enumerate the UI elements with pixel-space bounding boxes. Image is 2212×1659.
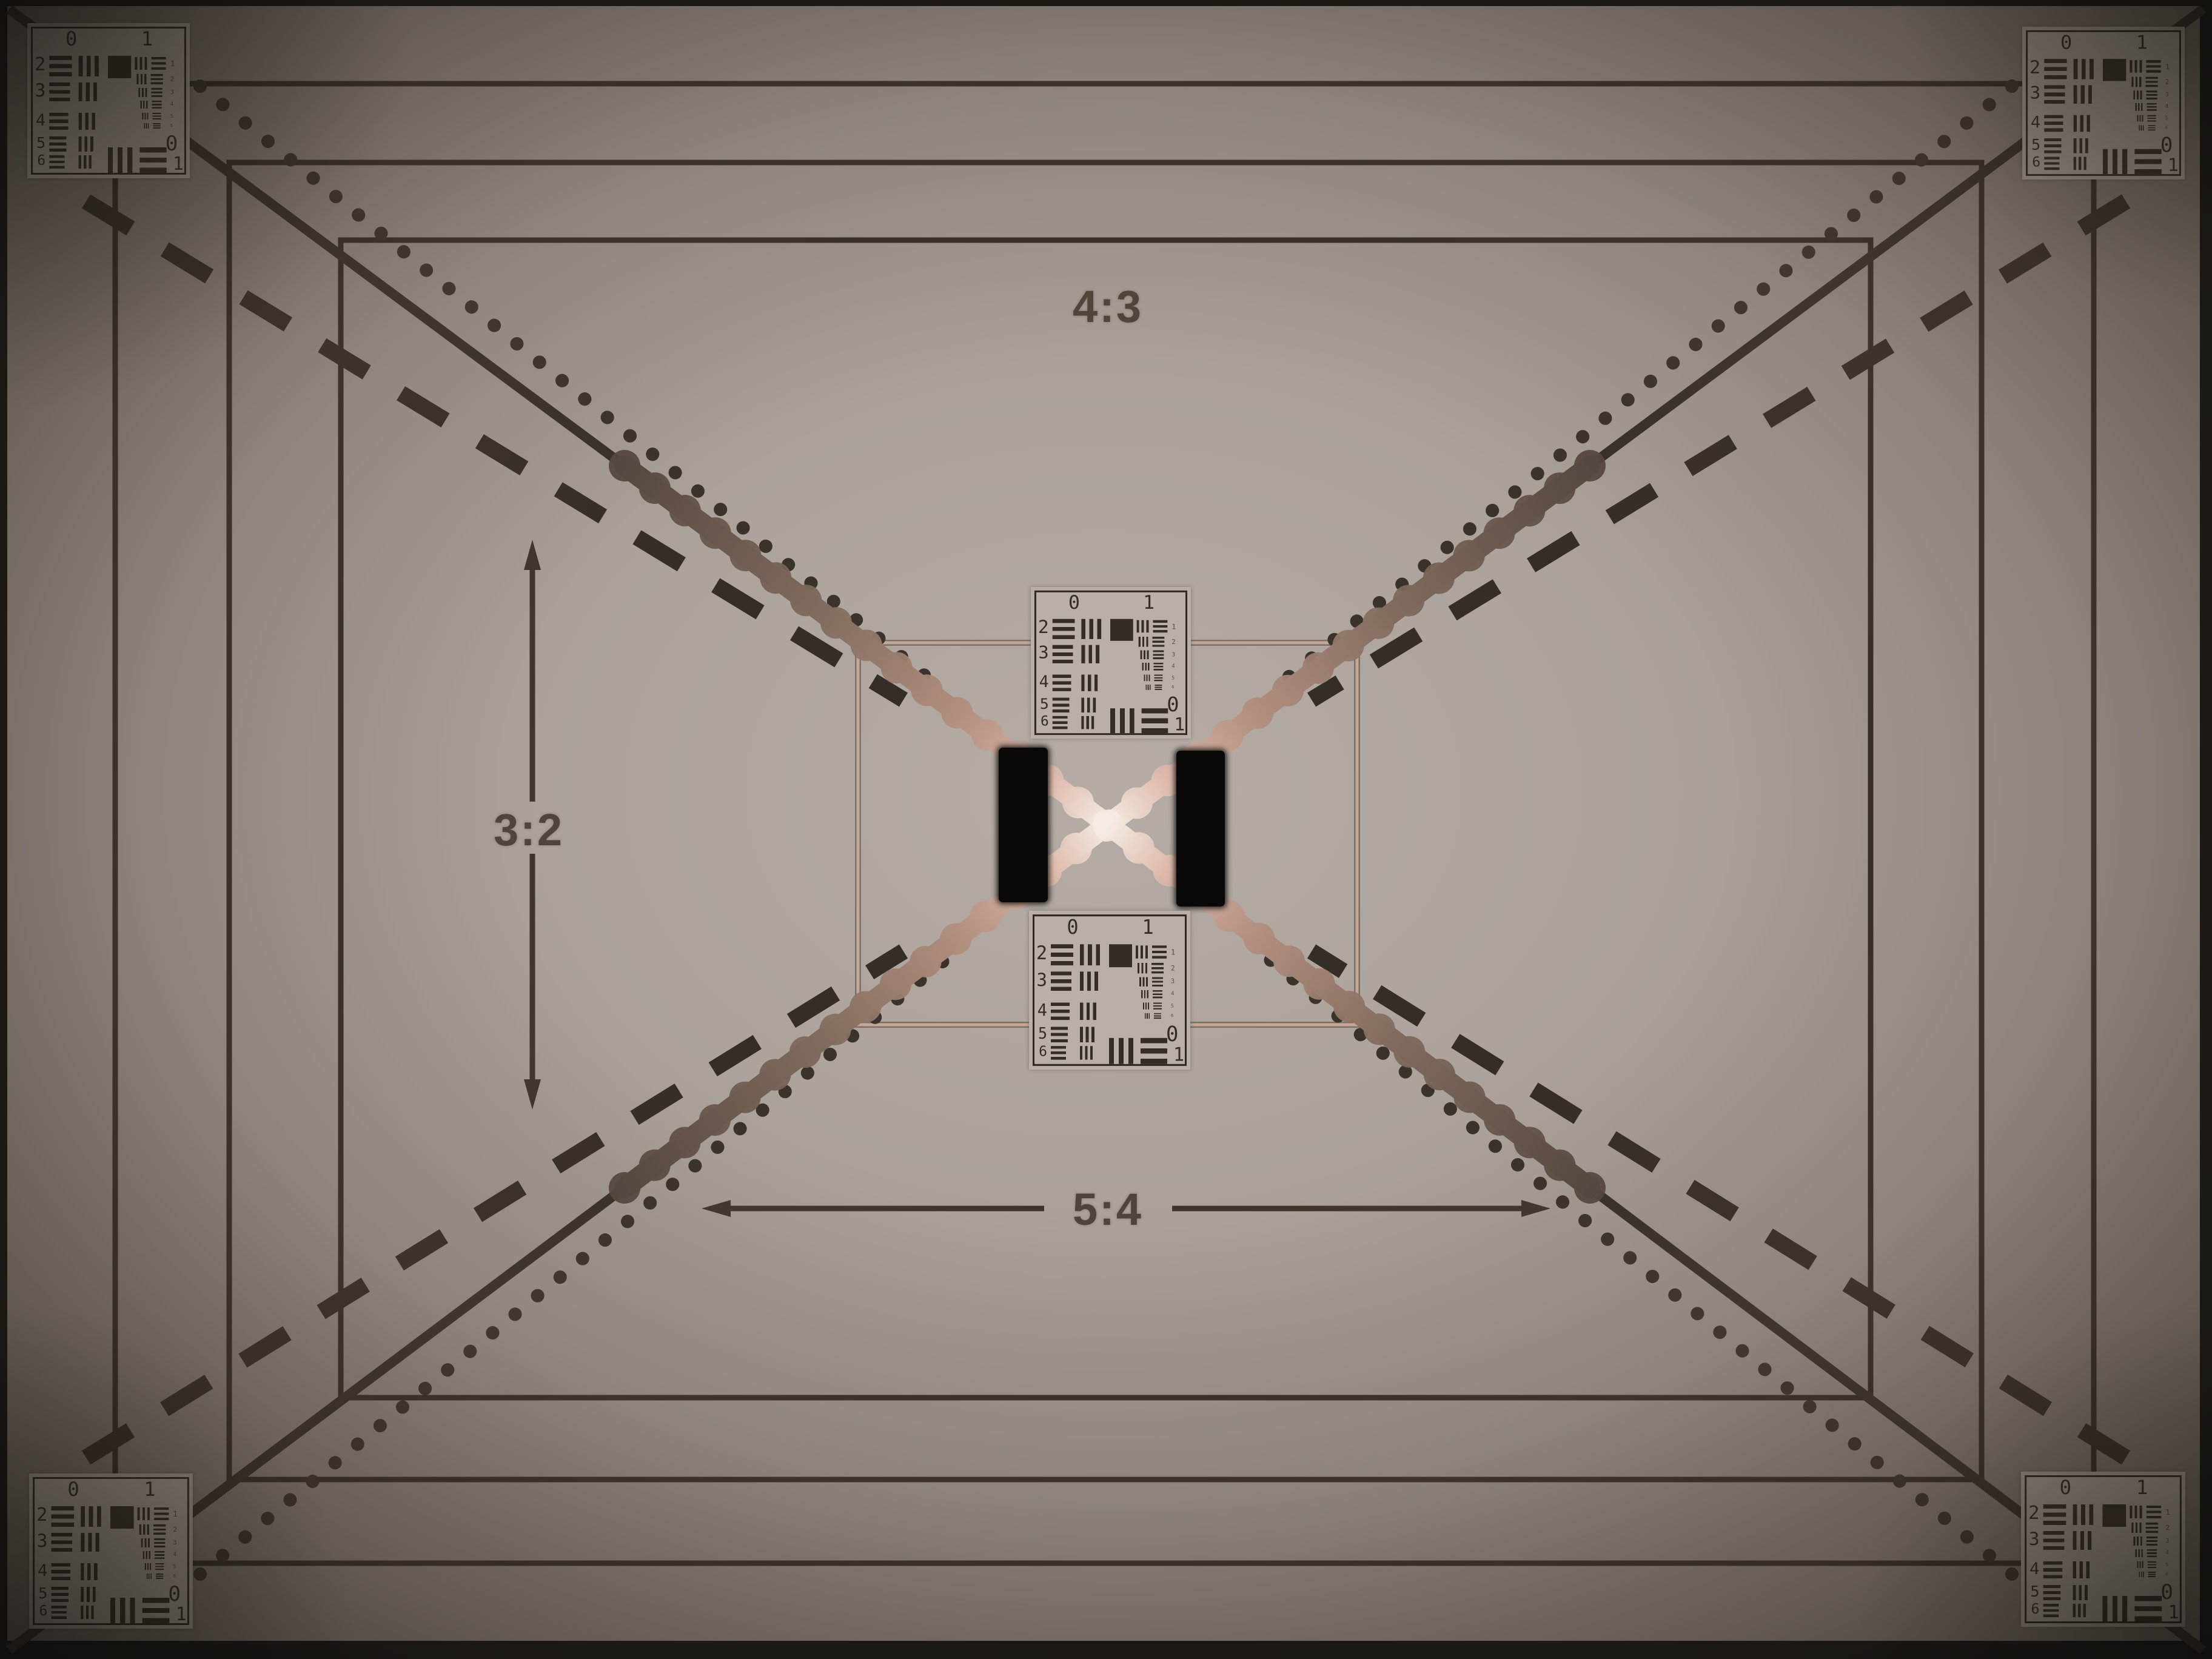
- right-horizontal-bars: [151, 74, 163, 84]
- card-black-square: [2103, 59, 2126, 81]
- left-horizontal-bars: [49, 155, 64, 169]
- right-horizontal-bars: [152, 101, 162, 109]
- bottom-vertical-bars: [1109, 1038, 1133, 1064]
- left-horizontal-bars: [1051, 971, 1071, 991]
- card-bottom-0-label: 0: [168, 1584, 181, 1604]
- right-horizontal-bars: [155, 1563, 164, 1570]
- left-row-number: 2: [2025, 59, 2040, 77]
- right-row-number: 4: [1171, 664, 1175, 669]
- left-horizontal-bars: [2044, 157, 2059, 170]
- left-horizontal-bars: [52, 1587, 69, 1602]
- left-row-number: 4: [2023, 1561, 2039, 1577]
- right-horizontal-bars: [2147, 103, 2157, 111]
- card-black-square: [110, 1506, 134, 1529]
- left-horizontal-bars: [2043, 1585, 2061, 1600]
- right-vertical-bars: [2139, 125, 2143, 130]
- card-bottom-1-label: 1: [2168, 157, 2179, 175]
- right-vertical-bars: [2137, 115, 2143, 122]
- card-group-1-label: 1: [1137, 593, 1161, 612]
- tape-beads: [625, 466, 1590, 1188]
- right-horizontal-bars: [155, 1551, 164, 1559]
- right-horizontal-bars: [152, 57, 166, 70]
- card-bottom-1-label: 1: [176, 1606, 187, 1624]
- right-horizontal-bars: [1153, 620, 1167, 633]
- card-bottom-1-label: 1: [173, 155, 184, 173]
- chart-graphics: [0, 0, 2212, 1659]
- velcro-right: [1176, 751, 1225, 907]
- left-vertical-bars: [2074, 59, 2094, 79]
- left-vertical-bars: [2073, 1585, 2088, 1600]
- card-black-square: [2102, 1504, 2126, 1527]
- aspect-label-4-3: 4:3: [1041, 281, 1175, 332]
- right-horizontal-bars: [2146, 1523, 2158, 1533]
- left-vertical-bars: [2074, 138, 2088, 153]
- left-horizontal-bars: [2044, 138, 2061, 153]
- target-bottom-right: 0 1 23456 123456 0 1: [2021, 1472, 2185, 1627]
- left-vertical-bars: [1080, 944, 1100, 965]
- left-horizontal-bars: [52, 1563, 70, 1580]
- right-row-number: 5: [170, 114, 173, 119]
- left-horizontal-bars: [49, 82, 70, 101]
- left-vertical-bars: [81, 1533, 99, 1552]
- left-row-number: 4: [1031, 1002, 1047, 1019]
- left-row-number: 3: [1033, 645, 1049, 662]
- right-vertical-bars: [1137, 620, 1149, 633]
- left-row-number: 6: [32, 1604, 47, 1618]
- left-row-number: 6: [2023, 1603, 2039, 1617]
- right-horizontal-bars: [156, 1574, 163, 1579]
- right-horizontal-bars: [1155, 685, 1162, 690]
- bottom-horizontal-bars: [139, 147, 166, 173]
- card-bottom-1-label: 1: [1174, 716, 1185, 734]
- right-vertical-bars: [2131, 77, 2141, 87]
- card-bottom-0-label: 0: [2160, 135, 2173, 155]
- card-bottom-0-label: 0: [1166, 1024, 1178, 1045]
- left-vertical-bars: [1081, 698, 1096, 712]
- metallic-tape: [625, 466, 1590, 1188]
- right-vertical-bars: [2135, 103, 2142, 111]
- right-horizontal-bars: [153, 123, 161, 129]
- right-vertical-bars: [135, 57, 147, 70]
- right-horizontal-bars: [1151, 963, 1164, 973]
- left-vertical-bars: [79, 136, 93, 152]
- right-horizontal-bars: [1152, 977, 1163, 987]
- left-vertical-bars: [81, 1587, 95, 1602]
- right-vertical-bars: [147, 1574, 152, 1579]
- arrowhead-down: [524, 1079, 541, 1110]
- right-vertical-bars: [2130, 60, 2142, 73]
- aspect-label-3-2: 3:2: [462, 804, 595, 856]
- left-horizontal-bars: [52, 1506, 75, 1527]
- left-row-number: 3: [32, 1532, 47, 1550]
- right-horizontal-bars: [1153, 1002, 1162, 1009]
- left-horizontal-bars: [1051, 1002, 1070, 1020]
- right-horizontal-bars: [2146, 77, 2158, 87]
- left-horizontal-bars: [52, 1533, 73, 1552]
- card-group-1-label: 1: [1136, 917, 1160, 937]
- left-vertical-bars: [2073, 1561, 2090, 1578]
- left-vertical-bars: [1081, 716, 1094, 729]
- right-vertical-bars: [2135, 1549, 2142, 1557]
- left-vertical-bars: [79, 113, 95, 130]
- left-horizontal-bars: [52, 1606, 67, 1619]
- right-row-number: 2: [2165, 79, 2170, 85]
- left-horizontal-bars: [2043, 1531, 2065, 1550]
- left-row-number: 5: [2023, 1584, 2039, 1599]
- right-row-number: 3: [173, 1540, 177, 1546]
- left-row-number: 6: [1031, 1045, 1047, 1059]
- right-row-number: 1: [2165, 63, 2170, 70]
- card-group-0-label: 0: [56, 29, 85, 49]
- left-horizontal-bars: [1051, 1027, 1068, 1042]
- left-vertical-bars: [81, 1506, 101, 1527]
- left-vertical-bars: [1080, 1002, 1096, 1020]
- right-row-number: 5: [2165, 1563, 2168, 1567]
- right-row-number: 2: [1171, 638, 1176, 645]
- bottom-vertical-bars: [2103, 149, 2127, 174]
- right-horizontal-bars: [1153, 990, 1162, 998]
- right-row-number: 4: [173, 1552, 177, 1558]
- right-vertical-bars: [2133, 1537, 2142, 1546]
- right-vertical-bars: [1146, 685, 1151, 690]
- left-horizontal-bars: [1053, 698, 1070, 712]
- left-horizontal-bars: [1053, 675, 1071, 691]
- bottom-horizontal-bars: [1141, 1038, 1167, 1064]
- card-black-square: [1109, 944, 1132, 967]
- right-horizontal-bars: [2148, 115, 2156, 122]
- left-vertical-bars: [2074, 115, 2090, 132]
- left-row-number: 2: [30, 56, 45, 74]
- left-vertical-bars: [2073, 1604, 2086, 1617]
- right-row-number: 1: [2165, 1509, 2170, 1516]
- card-group-1-label: 1: [138, 1480, 163, 1499]
- target-center-bottom: 0 1 23456 123456 0 1: [1029, 911, 1190, 1070]
- right-row-number: 3: [2165, 1538, 2169, 1544]
- bottom-horizontal-bars: [2134, 1596, 2162, 1621]
- card-bottom-0-label: 0: [166, 133, 178, 154]
- left-row-number: 2: [1031, 944, 1047, 963]
- right-row-number: 6: [170, 124, 173, 128]
- right-row-number: 2: [173, 1526, 178, 1533]
- right-row-number: 5: [2165, 116, 2168, 121]
- left-horizontal-bars: [49, 136, 66, 152]
- left-vertical-bars: [1081, 619, 1101, 639]
- right-horizontal-bars: [2148, 1572, 2156, 1577]
- right-vertical-bars: [141, 1538, 150, 1547]
- left-row-number: 6: [30, 154, 45, 168]
- left-vertical-bars: [81, 1563, 97, 1580]
- right-row-number: 6: [173, 1574, 176, 1578]
- right-vertical-bars: [1141, 650, 1149, 659]
- test-chart-photo: 4:3 3:2 5:4 0 1 23456 123456 0 1 0 1 234…: [0, 0, 2212, 1659]
- right-vertical-bars: [138, 1507, 150, 1520]
- right-row-number: 3: [1171, 652, 1175, 658]
- left-horizontal-bars: [1053, 645, 1073, 663]
- aspect-label-5-4: 5:4: [1041, 1184, 1175, 1235]
- right-horizontal-bars: [2147, 1506, 2161, 1518]
- card-bottom-0-label: 0: [1167, 695, 1179, 715]
- right-vertical-bars: [1143, 1002, 1149, 1009]
- left-row-number: 5: [2025, 137, 2040, 152]
- left-horizontal-bars: [49, 113, 68, 130]
- arrowhead-up: [524, 540, 541, 570]
- left-vertical-bars: [79, 155, 92, 169]
- bottom-vertical-bars: [108, 147, 132, 173]
- left-row-number: 3: [2025, 84, 2040, 102]
- right-vertical-bars: [2137, 1561, 2143, 1568]
- right-horizontal-bars: [2147, 1549, 2157, 1557]
- right-vertical-bars: [145, 1563, 151, 1570]
- left-row-number: 6: [1033, 714, 1049, 728]
- right-vertical-bars: [136, 74, 146, 84]
- right-vertical-bars: [1139, 637, 1148, 647]
- right-row-number: 1: [1171, 623, 1176, 630]
- left-vertical-bars: [1081, 675, 1098, 691]
- left-row-number: 3: [30, 82, 45, 99]
- right-vertical-bars: [1145, 1013, 1150, 1019]
- card-bottom-1-label: 1: [1173, 1046, 1184, 1065]
- left-vertical-bars: [1080, 971, 1098, 991]
- left-horizontal-bars: [2044, 115, 2063, 132]
- target-top-left: 0 1 23456 123456 0 1: [27, 23, 190, 178]
- left-horizontal-bars: [1051, 944, 1073, 965]
- target-top-right: 0 1 23456 123456 0 1: [2022, 27, 2185, 179]
- bottom-horizontal-bars: [142, 1598, 170, 1623]
- right-horizontal-bars: [154, 1507, 169, 1520]
- left-vertical-bars: [1081, 645, 1099, 663]
- right-row-number: 1: [1171, 948, 1175, 956]
- card-group-0-label: 0: [59, 1480, 89, 1499]
- left-vertical-bars: [1080, 1027, 1094, 1042]
- left-row-number: 4: [1033, 674, 1049, 689]
- right-row-number: 1: [170, 60, 175, 67]
- right-vertical-bars: [138, 88, 147, 97]
- velcro-left: [999, 748, 1048, 902]
- right-vertical-bars: [1144, 675, 1150, 682]
- left-horizontal-bars: [49, 56, 72, 76]
- right-horizontal-bars: [2147, 60, 2161, 73]
- card-black-square: [108, 56, 131, 78]
- card-group-0-label: 0: [1058, 917, 1087, 937]
- right-vertical-bars: [1136, 945, 1148, 958]
- right-row-number: 4: [2165, 1550, 2169, 1556]
- card-group-0-label: 0: [1060, 593, 1089, 612]
- right-horizontal-bars: [152, 88, 163, 97]
- bottom-horizontal-bars: [2134, 149, 2161, 174]
- left-vertical-bars: [81, 1606, 93, 1619]
- right-row-number: 6: [2165, 126, 2168, 130]
- right-horizontal-bars: [154, 1538, 165, 1547]
- left-horizontal-bars: [2043, 1561, 2063, 1578]
- right-row-number: 1: [173, 1510, 178, 1518]
- card-bottom-0-label: 0: [2160, 1582, 2173, 1603]
- right-horizontal-bars: [1152, 945, 1167, 958]
- card-group-0-label: 0: [2051, 33, 2080, 52]
- right-horizontal-bars: [2148, 1561, 2156, 1568]
- right-horizontal-bars: [2148, 125, 2156, 130]
- left-row-number: 4: [32, 1563, 47, 1579]
- right-row-number: 5: [1171, 1004, 1174, 1008]
- left-vertical-bars: [2074, 85, 2092, 104]
- right-horizontal-bars: [153, 113, 161, 119]
- card-group-1-label: 1: [2130, 1478, 2154, 1497]
- bottom-vertical-bars: [2102, 1596, 2127, 1621]
- left-vertical-bars: [1080, 1046, 1093, 1060]
- bottom-vertical-bars: [1110, 708, 1134, 733]
- right-row-number: 4: [170, 102, 173, 107]
- right-row-number: 5: [1171, 675, 1175, 680]
- left-horizontal-bars: [1051, 1046, 1066, 1060]
- left-vertical-bars: [79, 56, 99, 76]
- target-bottom-left: 0 1 23456 123456 0 1: [29, 1473, 193, 1629]
- right-row-number: 3: [170, 90, 174, 96]
- bottom-vertical-bars: [110, 1598, 135, 1623]
- right-vertical-bars: [1142, 663, 1150, 671]
- left-row-number: 2: [32, 1506, 47, 1524]
- left-horizontal-bars: [2043, 1504, 2066, 1525]
- left-row-number: 2: [1033, 619, 1049, 637]
- left-row-number: 4: [30, 112, 45, 129]
- right-vertical-bars: [139, 1524, 149, 1535]
- card-black-square: [1110, 619, 1133, 641]
- left-row-number: 5: [30, 135, 45, 150]
- left-horizontal-bars: [2044, 59, 2066, 79]
- left-horizontal-bars: [1053, 716, 1068, 729]
- card-group-1-label: 1: [135, 29, 159, 49]
- left-horizontal-bars: [1053, 619, 1075, 639]
- card-bottom-1-label: 1: [2168, 1604, 2179, 1622]
- right-vertical-bars: [1139, 977, 1148, 987]
- arrowhead-right: [1521, 1200, 1550, 1217]
- right-vertical-bars: [143, 1551, 150, 1559]
- left-horizontal-bars: [2044, 85, 2065, 104]
- right-row-number: 4: [2165, 104, 2168, 110]
- target-center-top: 0 1 23456 123456 0 1: [1031, 587, 1191, 739]
- right-row-number: 6: [2165, 1572, 2168, 1577]
- right-horizontal-bars: [1153, 663, 1163, 671]
- right-vertical-bars: [2139, 1572, 2144, 1577]
- right-horizontal-bars: [2147, 90, 2157, 99]
- right-row-number: 2: [1171, 965, 1175, 971]
- arrowhead-left: [702, 1200, 731, 1217]
- right-horizontal-bars: [1154, 675, 1162, 682]
- right-row-number: 4: [1171, 991, 1174, 997]
- card-group-0-label: 0: [2051, 1478, 2080, 1497]
- right-vertical-bars: [144, 123, 149, 129]
- right-horizontal-bars: [1153, 650, 1164, 659]
- right-row-number: 3: [1171, 979, 1175, 985]
- right-vertical-bars: [1138, 963, 1147, 973]
- left-row-number: 4: [2025, 114, 2040, 130]
- right-horizontal-bars: [2147, 1537, 2157, 1546]
- bottom-horizontal-bars: [1142, 708, 1168, 733]
- right-vertical-bars: [1141, 990, 1148, 998]
- left-row-number: 2: [2023, 1504, 2039, 1523]
- right-vertical-bars: [142, 113, 148, 119]
- right-row-number: 2: [170, 76, 175, 82]
- left-row-number: 3: [2023, 1530, 2039, 1548]
- right-row-number: 3: [2165, 92, 2169, 98]
- card-group-1-label: 1: [2130, 33, 2154, 52]
- left-vertical-bars: [2073, 1504, 2094, 1525]
- right-horizontal-bars: [153, 1524, 166, 1535]
- left-vertical-bars: [79, 82, 97, 101]
- right-vertical-bars: [140, 101, 147, 109]
- right-horizontal-bars: [1154, 1013, 1161, 1019]
- right-vertical-bars: [2133, 90, 2142, 99]
- right-horizontal-bars: [1152, 637, 1164, 647]
- left-row-number: 5: [32, 1586, 47, 1601]
- left-vertical-bars: [2073, 1531, 2092, 1550]
- right-row-number: 6: [1171, 685, 1174, 689]
- right-vertical-bars: [2131, 1523, 2141, 1533]
- left-row-number: 6: [2025, 155, 2040, 169]
- left-row-number: 3: [1031, 971, 1047, 989]
- left-row-number: 5: [1033, 697, 1049, 711]
- right-row-number: 5: [173, 1564, 176, 1569]
- right-row-number: 2: [2165, 1524, 2170, 1531]
- left-horizontal-bars: [2043, 1604, 2059, 1617]
- right-vertical-bars: [2130, 1506, 2142, 1518]
- right-row-number: 6: [1171, 1014, 1173, 1018]
- left-vertical-bars: [2074, 157, 2086, 170]
- left-row-number: 5: [1031, 1025, 1047, 1041]
